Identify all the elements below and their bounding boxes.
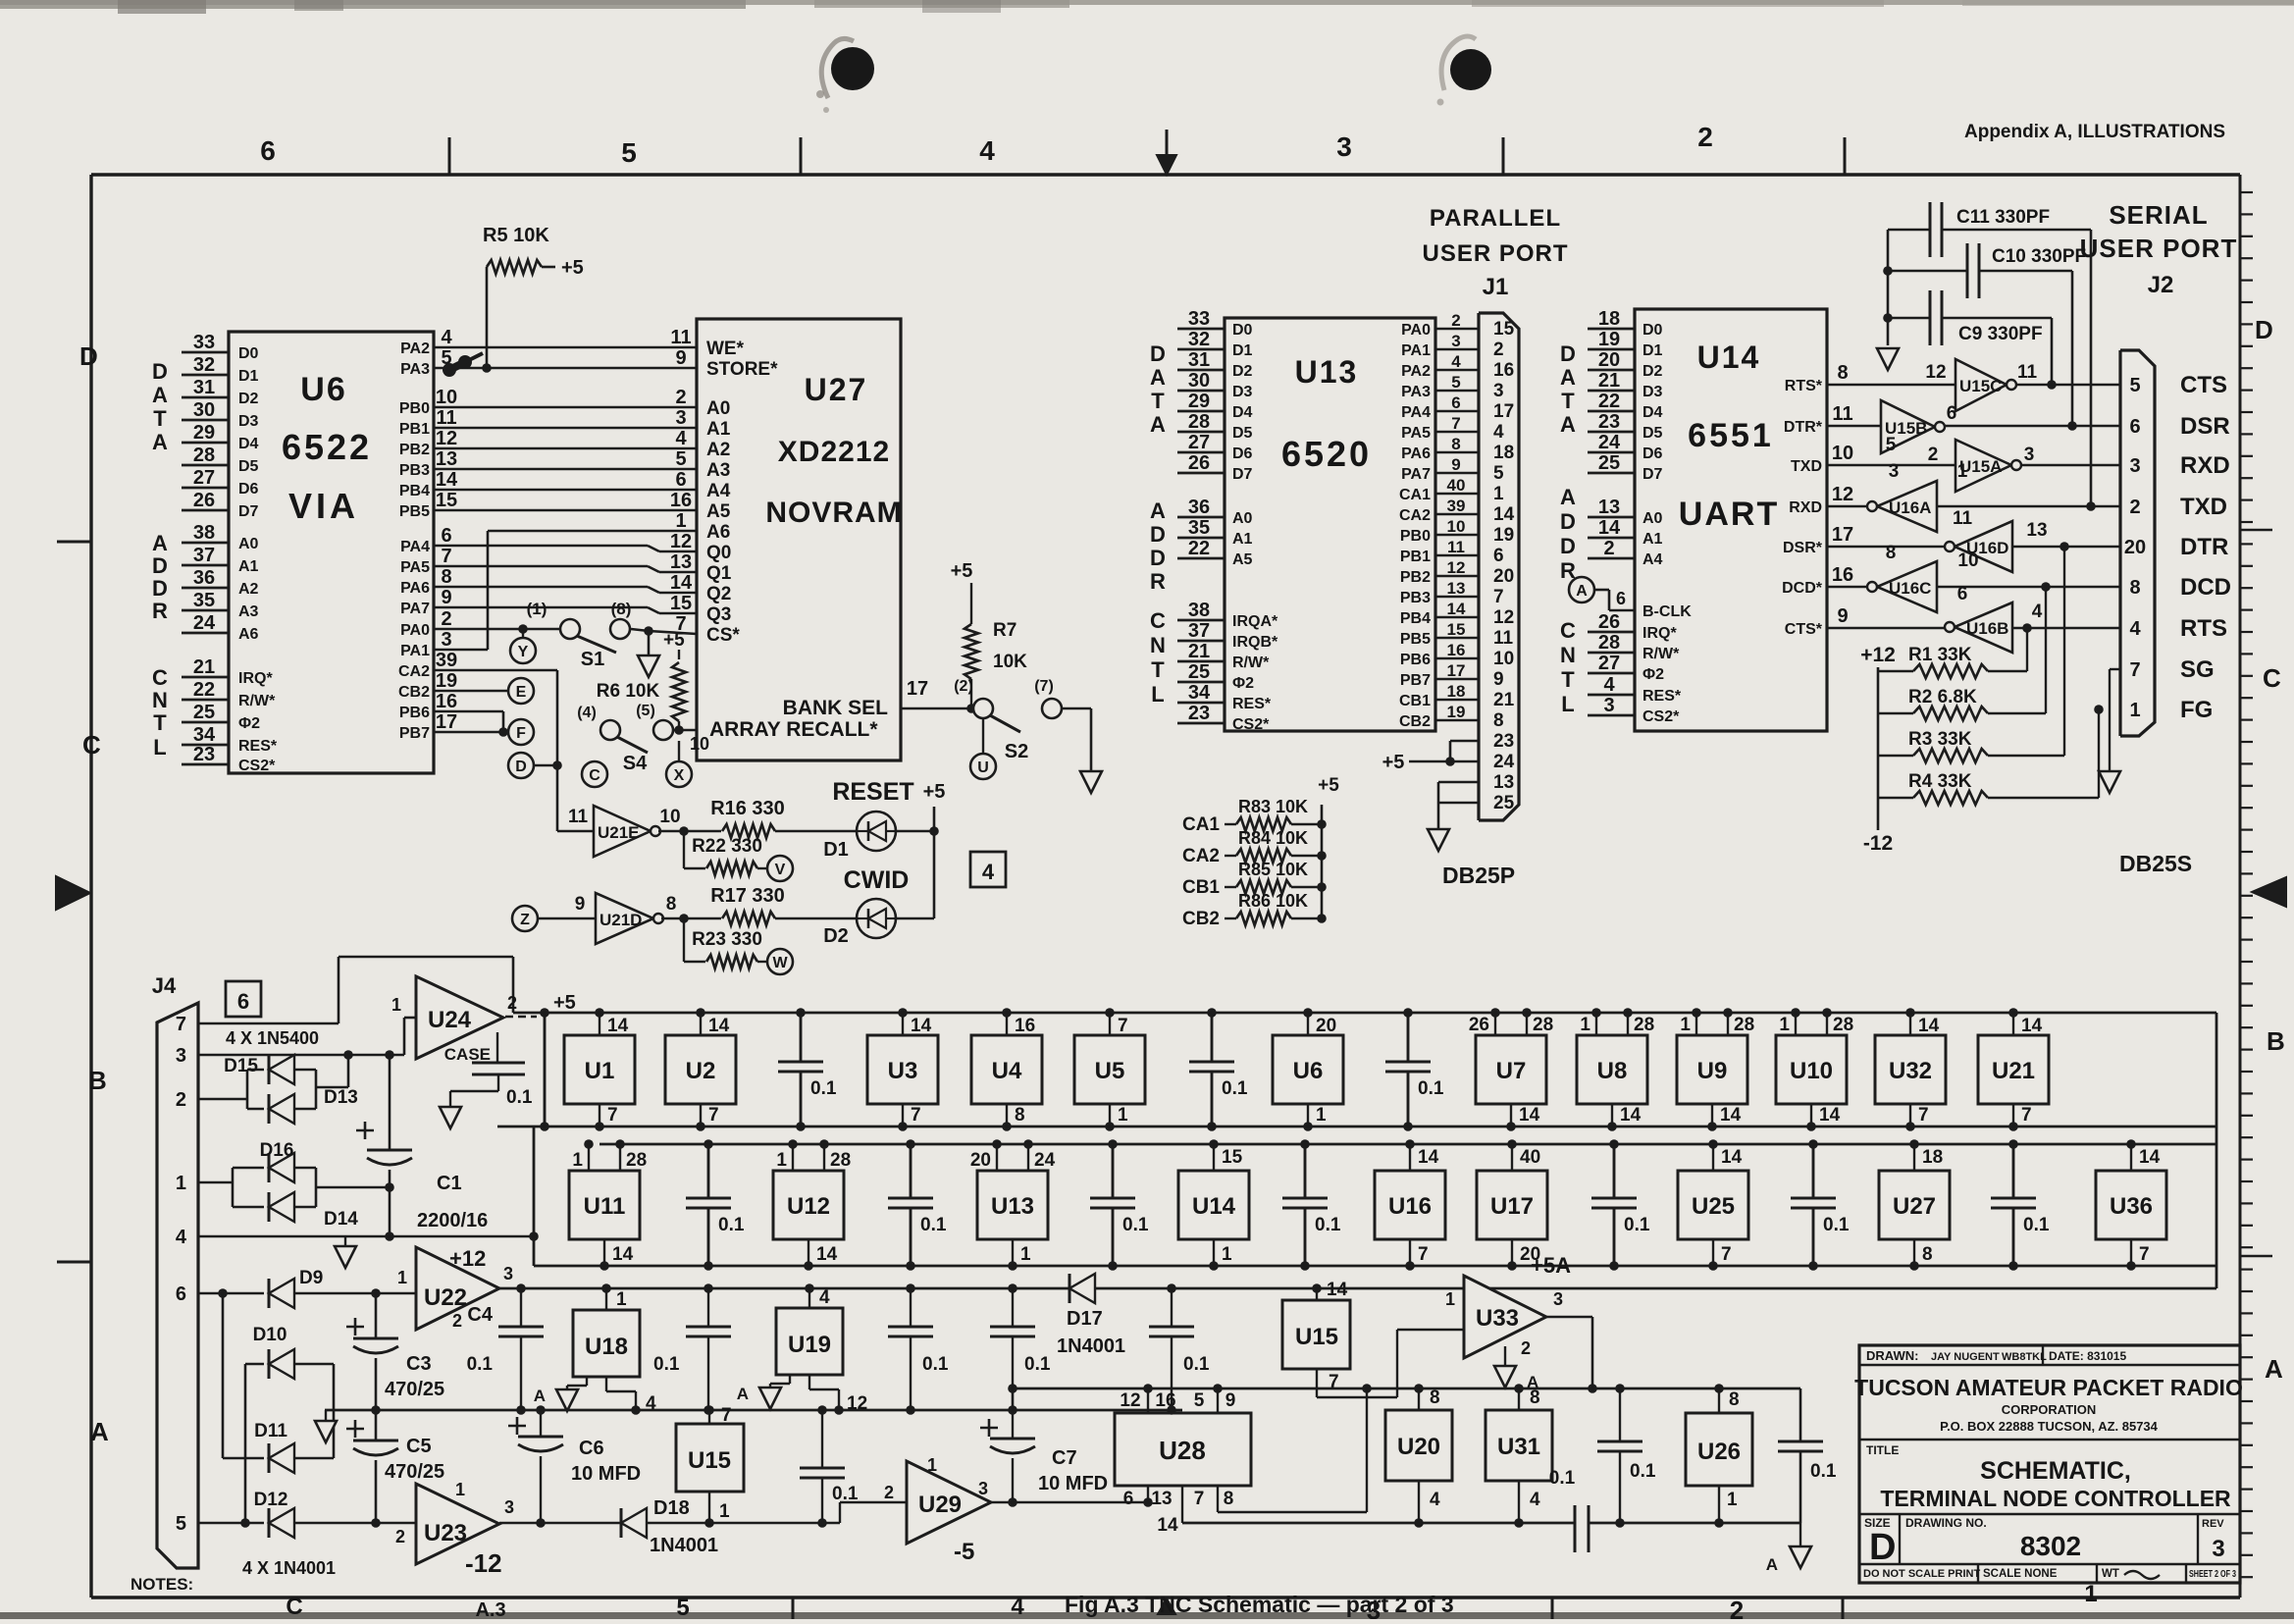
svg-text:1: 1 xyxy=(675,510,686,532)
svg-text:U14: U14 xyxy=(1192,1193,1236,1220)
svg-text:7: 7 xyxy=(1493,587,1504,607)
svg-text:PA2: PA2 xyxy=(1401,363,1431,380)
svg-text:14: 14 xyxy=(1418,1147,1439,1168)
svg-text:U29: U29 xyxy=(918,1492,962,1518)
svg-text:D12: D12 xyxy=(254,1490,288,1510)
svg-text:C9 330PF: C9 330PF xyxy=(1958,324,2043,344)
svg-text:0.1: 0.1 xyxy=(832,1484,859,1504)
svg-text:R83 10K: R83 10K xyxy=(1238,797,1308,816)
svg-text:A1: A1 xyxy=(1642,531,1663,548)
svg-text:2: 2 xyxy=(1521,1338,1531,1358)
svg-text:NOTES:: NOTES: xyxy=(130,1575,193,1594)
svg-text:A: A xyxy=(1150,412,1166,437)
svg-text:1: 1 xyxy=(1020,1244,1031,1265)
svg-text:0.1: 0.1 xyxy=(718,1215,745,1235)
svg-text:CB2: CB2 xyxy=(1182,909,1220,929)
svg-text:U26: U26 xyxy=(1697,1439,1741,1465)
svg-text:14: 14 xyxy=(708,1016,730,1036)
svg-text:28: 28 xyxy=(1533,1015,1553,1035)
svg-text:U14: U14 xyxy=(1697,340,1761,375)
svg-text:9: 9 xyxy=(1493,669,1504,690)
svg-text:4: 4 xyxy=(441,327,452,348)
svg-text:0.1: 0.1 xyxy=(1315,1215,1341,1235)
svg-text:34: 34 xyxy=(1188,682,1211,704)
svg-text:16: 16 xyxy=(670,490,692,511)
svg-text:13: 13 xyxy=(2026,520,2047,541)
svg-text:9: 9 xyxy=(575,894,586,915)
svg-text:2: 2 xyxy=(1730,1596,1744,1619)
svg-text:30: 30 xyxy=(193,399,215,421)
svg-text:R6 10K: R6 10K xyxy=(597,681,660,702)
svg-text:D13: D13 xyxy=(324,1087,358,1108)
svg-text:PB0: PB0 xyxy=(399,400,430,417)
svg-text:5: 5 xyxy=(1194,1390,1205,1411)
svg-text:RXD: RXD xyxy=(1789,499,1822,516)
svg-text:14: 14 xyxy=(2139,1147,2161,1168)
svg-text:11: 11 xyxy=(1953,508,1973,529)
svg-text:D2: D2 xyxy=(823,925,849,947)
svg-text:9: 9 xyxy=(1451,455,1460,474)
svg-text:P.O. BOX 22888 TUCSON, AZ: P.O. BOX 22888 TUCSON, AZ. 85734 xyxy=(1940,1419,2159,1434)
svg-text:R17 330: R17 330 xyxy=(710,885,785,907)
svg-text:38: 38 xyxy=(193,522,215,544)
svg-text:D: D xyxy=(1150,341,1166,366)
svg-text:1: 1 xyxy=(397,1268,407,1287)
svg-text:F: F xyxy=(516,725,526,742)
svg-text:4: 4 xyxy=(1430,1490,1440,1510)
svg-text:PA7: PA7 xyxy=(1401,466,1431,483)
svg-text:5: 5 xyxy=(1493,463,1504,484)
svg-text:2: 2 xyxy=(2129,497,2140,518)
svg-text:40: 40 xyxy=(1520,1147,1540,1168)
svg-text:PB6: PB6 xyxy=(1400,652,1431,668)
svg-text:10K: 10K xyxy=(993,652,1027,672)
svg-text:Q1: Q1 xyxy=(706,563,732,584)
svg-text:(2): (2) xyxy=(954,678,973,695)
svg-text:R/W*: R/W* xyxy=(238,693,276,709)
svg-text:U6: U6 xyxy=(1293,1058,1324,1084)
svg-text:24: 24 xyxy=(193,612,216,634)
svg-text:T: T xyxy=(153,710,167,735)
svg-text:PB2: PB2 xyxy=(1400,569,1431,586)
svg-text:R/W*: R/W* xyxy=(1642,646,1680,662)
svg-text:CS2*: CS2* xyxy=(1232,716,1270,733)
svg-text:14: 14 xyxy=(1157,1515,1178,1536)
svg-text:U18: U18 xyxy=(585,1334,628,1360)
svg-text:30: 30 xyxy=(1188,370,1210,392)
svg-text:DSR: DSR xyxy=(2180,413,2230,440)
svg-text:PA1: PA1 xyxy=(400,643,430,659)
svg-text:1: 1 xyxy=(455,1480,465,1499)
svg-text:32: 32 xyxy=(193,354,215,376)
svg-text:(4): (4) xyxy=(577,705,597,721)
svg-text:3: 3 xyxy=(503,1264,513,1283)
svg-text:14: 14 xyxy=(1598,517,1621,539)
svg-text:2: 2 xyxy=(395,1527,405,1546)
svg-text:RTS*: RTS* xyxy=(1785,378,1823,394)
svg-text:6: 6 xyxy=(2129,416,2140,438)
svg-text:U1: U1 xyxy=(585,1058,615,1084)
svg-text:13: 13 xyxy=(1447,579,1466,598)
svg-text:14: 14 xyxy=(1720,1105,1742,1126)
svg-text:PB2: PB2 xyxy=(399,442,430,458)
svg-text:0.1: 0.1 xyxy=(922,1354,949,1375)
svg-text:1: 1 xyxy=(1118,1105,1128,1126)
svg-text:3: 3 xyxy=(1336,131,1352,162)
svg-text:(7): (7) xyxy=(1034,678,1054,695)
svg-text:PB1: PB1 xyxy=(399,421,430,438)
svg-text:4: 4 xyxy=(1530,1490,1540,1510)
svg-text:U15: U15 xyxy=(1295,1324,1338,1350)
svg-text:6: 6 xyxy=(1947,403,1957,424)
svg-text:28: 28 xyxy=(830,1150,851,1171)
svg-text:13: 13 xyxy=(1151,1489,1172,1509)
svg-text:D: D xyxy=(1869,1527,1896,1568)
svg-text:4 X 1N5400: 4 X 1N5400 xyxy=(226,1028,319,1048)
svg-text:9: 9 xyxy=(441,587,451,608)
svg-text:13: 13 xyxy=(670,551,692,573)
svg-text:33: 33 xyxy=(1188,308,1210,330)
svg-text:D1: D1 xyxy=(238,368,259,385)
svg-text:U21: U21 xyxy=(1992,1058,2035,1084)
svg-text:0.1: 0.1 xyxy=(1810,1461,1837,1482)
svg-text:CWID: CWID xyxy=(844,866,910,894)
svg-text:6520: 6520 xyxy=(1281,434,1372,474)
svg-text:11: 11 xyxy=(436,407,456,429)
svg-text:SCALE NONE: SCALE NONE xyxy=(1983,1568,2058,1580)
svg-text:U8: U8 xyxy=(1597,1058,1628,1084)
svg-text:2: 2 xyxy=(884,1483,894,1502)
svg-text:J4: J4 xyxy=(152,973,177,998)
svg-text:10: 10 xyxy=(659,807,680,827)
svg-text:11: 11 xyxy=(1447,538,1465,556)
svg-text:CB1: CB1 xyxy=(1182,877,1220,898)
svg-text:10: 10 xyxy=(1957,550,1978,571)
svg-text:28: 28 xyxy=(193,445,215,466)
svg-text:19: 19 xyxy=(1447,703,1466,721)
svg-text:A: A xyxy=(152,430,168,454)
svg-text:DATE: 831015: DATE: 831015 xyxy=(2049,1349,2126,1363)
svg-text:1: 1 xyxy=(1580,1015,1590,1035)
svg-text:U2: U2 xyxy=(686,1058,716,1084)
svg-text:26: 26 xyxy=(1469,1015,1489,1035)
svg-text:0.1: 0.1 xyxy=(653,1354,680,1375)
svg-text:D14: D14 xyxy=(324,1209,358,1230)
svg-text:A: A xyxy=(737,1385,749,1403)
svg-text:3: 3 xyxy=(1603,695,1614,716)
svg-text:6: 6 xyxy=(1123,1489,1134,1509)
svg-text:PA7: PA7 xyxy=(400,601,430,617)
svg-text:A6: A6 xyxy=(238,626,259,643)
svg-text:5: 5 xyxy=(621,137,637,168)
svg-text:U28: U28 xyxy=(1159,1436,1206,1465)
svg-text:V: V xyxy=(775,862,786,878)
svg-text:+5: +5 xyxy=(663,630,685,651)
svg-text:1: 1 xyxy=(776,1150,787,1171)
svg-text:RTS: RTS xyxy=(2180,615,2227,642)
svg-text:PB3: PB3 xyxy=(399,462,430,479)
svg-text:D6: D6 xyxy=(1642,445,1663,462)
svg-text:4: 4 xyxy=(646,1393,656,1414)
svg-text:U19: U19 xyxy=(788,1332,831,1358)
svg-text:+5: +5 xyxy=(923,781,946,803)
svg-text:12: 12 xyxy=(1120,1390,1140,1411)
svg-text:U21D: U21D xyxy=(600,911,642,929)
svg-text:10: 10 xyxy=(690,734,709,754)
svg-text:19: 19 xyxy=(436,670,457,692)
svg-text:SCHEMATIC,: SCHEMATIC, xyxy=(1980,1457,2131,1485)
svg-text:PA4: PA4 xyxy=(400,539,430,555)
svg-text:6: 6 xyxy=(1616,589,1626,608)
svg-text:3: 3 xyxy=(1367,1596,1381,1619)
svg-text:23: 23 xyxy=(1188,703,1210,724)
svg-text:U5: U5 xyxy=(1095,1058,1125,1084)
svg-text:A5: A5 xyxy=(1232,551,1253,568)
svg-text:1: 1 xyxy=(1493,484,1504,504)
svg-text:8: 8 xyxy=(1493,710,1504,731)
svg-text:D: D xyxy=(152,576,168,601)
svg-text:5: 5 xyxy=(2129,375,2140,396)
svg-text:-5: -5 xyxy=(954,1539,974,1565)
svg-text:29: 29 xyxy=(1188,391,1210,412)
svg-text:2: 2 xyxy=(441,608,451,630)
svg-text:C: C xyxy=(286,1594,302,1619)
svg-text:FG: FG xyxy=(2180,697,2213,723)
svg-text:R84 10K: R84 10K xyxy=(1238,828,1308,848)
svg-text:7: 7 xyxy=(441,546,451,567)
svg-text:IRQ*: IRQ* xyxy=(1642,625,1677,642)
svg-text:29: 29 xyxy=(193,422,215,444)
svg-text:1N4001: 1N4001 xyxy=(1057,1336,1125,1357)
svg-text:0.1: 0.1 xyxy=(1418,1078,1444,1099)
svg-text:31: 31 xyxy=(193,377,215,398)
svg-text:U20: U20 xyxy=(1397,1434,1440,1460)
svg-text:U12: U12 xyxy=(787,1193,830,1220)
svg-text:6551: 6551 xyxy=(1688,417,1774,454)
svg-text:4: 4 xyxy=(982,860,995,884)
svg-text:U21E: U21E xyxy=(598,823,640,842)
svg-text:3: 3 xyxy=(1451,332,1460,350)
svg-text:IRQ*: IRQ* xyxy=(238,670,273,687)
svg-text:CB1: CB1 xyxy=(1399,693,1431,709)
svg-text:D2: D2 xyxy=(1232,363,1253,380)
svg-text:A: A xyxy=(1560,365,1576,390)
svg-text:PA5: PA5 xyxy=(1401,425,1431,442)
svg-text:PB5: PB5 xyxy=(399,503,430,520)
svg-text:4: 4 xyxy=(1451,352,1461,371)
svg-text:10 MFD: 10 MFD xyxy=(1038,1473,1108,1494)
svg-text:14: 14 xyxy=(436,469,458,491)
svg-text:3: 3 xyxy=(1493,381,1504,401)
svg-text:D3: D3 xyxy=(1232,384,1253,400)
svg-text:12: 12 xyxy=(436,428,457,449)
svg-text:IRQA*: IRQA* xyxy=(1232,613,1278,630)
svg-text:20: 20 xyxy=(970,1150,991,1171)
svg-text:26: 26 xyxy=(1188,452,1210,474)
svg-text:U6: U6 xyxy=(300,371,346,408)
svg-text:R1 33K: R1 33K xyxy=(1908,645,1972,665)
svg-text:19: 19 xyxy=(1598,329,1620,350)
svg-text:R2 6.8K: R2 6.8K xyxy=(1908,687,1977,707)
svg-text:A: A xyxy=(534,1387,546,1405)
svg-text:8: 8 xyxy=(1886,543,1897,563)
svg-text:PA3: PA3 xyxy=(1401,384,1431,400)
svg-text:D1: D1 xyxy=(1232,342,1253,359)
svg-text:1: 1 xyxy=(1316,1105,1327,1126)
svg-text:8: 8 xyxy=(1430,1388,1440,1408)
svg-text:A4: A4 xyxy=(1642,551,1663,568)
svg-text:3: 3 xyxy=(176,1045,186,1067)
svg-text:0.1: 0.1 xyxy=(1122,1215,1149,1235)
svg-text:WE*: WE* xyxy=(706,339,745,359)
svg-text:Y: Y xyxy=(518,644,529,660)
svg-text:U16C: U16C xyxy=(1889,579,1931,598)
svg-text:S1: S1 xyxy=(581,649,604,670)
svg-text:C11 330PF: C11 330PF xyxy=(1956,207,2050,228)
svg-text:21: 21 xyxy=(1598,370,1620,392)
svg-text:28: 28 xyxy=(626,1150,647,1171)
svg-text:8: 8 xyxy=(1224,1489,1234,1509)
svg-text:DSR*: DSR* xyxy=(1783,540,1823,556)
svg-text:D: D xyxy=(1150,522,1166,547)
svg-text:U15C: U15C xyxy=(1959,377,2002,395)
svg-text:11: 11 xyxy=(670,327,691,348)
svg-text:16: 16 xyxy=(1015,1016,1035,1036)
svg-text:15: 15 xyxy=(670,593,692,614)
svg-text:23: 23 xyxy=(1493,731,1514,752)
svg-text:D0: D0 xyxy=(1642,322,1663,339)
svg-text:3: 3 xyxy=(1889,461,1900,482)
svg-text:PB5: PB5 xyxy=(1400,631,1431,648)
svg-text:14: 14 xyxy=(1819,1105,1841,1126)
svg-text:14: 14 xyxy=(1620,1105,1642,1126)
svg-text:2: 2 xyxy=(1697,122,1713,152)
svg-text:1: 1 xyxy=(1779,1015,1790,1035)
svg-text:R: R xyxy=(152,599,168,623)
svg-text:7: 7 xyxy=(2021,1105,2032,1126)
svg-text:NOVRAM: NOVRAM xyxy=(765,497,902,529)
svg-text:Q3: Q3 xyxy=(706,604,731,625)
svg-text:TXD: TXD xyxy=(1791,458,1822,475)
svg-text:1: 1 xyxy=(1680,1015,1691,1035)
svg-text:(1): (1) xyxy=(527,600,547,618)
svg-text:+12: +12 xyxy=(449,1246,486,1271)
svg-text:D7: D7 xyxy=(1232,466,1253,483)
svg-text:6: 6 xyxy=(1957,584,1968,604)
svg-text:D4: D4 xyxy=(238,436,259,452)
svg-text:SG: SG xyxy=(2180,656,2215,683)
svg-text:W: W xyxy=(772,955,788,971)
svg-text:14: 14 xyxy=(1918,1016,1940,1036)
svg-text:0.1: 0.1 xyxy=(506,1087,533,1108)
svg-text:4: 4 xyxy=(1011,1594,1024,1619)
svg-text:RES*: RES* xyxy=(1642,688,1682,705)
svg-text:CORPORATION: CORPORATION xyxy=(2002,1402,2097,1417)
svg-text:470/25: 470/25 xyxy=(385,1461,444,1483)
svg-text:14: 14 xyxy=(1327,1280,1348,1300)
svg-text:R3 33K: R3 33K xyxy=(1908,729,1972,750)
svg-text:1: 1 xyxy=(1445,1289,1455,1309)
svg-text:4: 4 xyxy=(675,428,687,449)
svg-text:8: 8 xyxy=(666,894,677,915)
svg-text:R/W*: R/W* xyxy=(1232,655,1270,671)
svg-text:14: 14 xyxy=(670,572,693,594)
svg-text:2: 2 xyxy=(1603,538,1614,559)
svg-text:1: 1 xyxy=(1222,1244,1232,1265)
svg-text:CS*: CS* xyxy=(706,625,740,646)
svg-text:U4: U4 xyxy=(992,1058,1022,1084)
svg-text:D5: D5 xyxy=(1642,425,1663,442)
svg-text:DB25S: DB25S xyxy=(2119,851,2192,876)
svg-text:35: 35 xyxy=(1188,517,1210,539)
svg-text:D6: D6 xyxy=(1232,445,1253,462)
svg-text:23: 23 xyxy=(1598,411,1620,433)
svg-text:D1: D1 xyxy=(823,839,849,861)
svg-text:14: 14 xyxy=(1447,600,1466,618)
svg-text:7: 7 xyxy=(1918,1105,1929,1126)
svg-text:A1: A1 xyxy=(1232,531,1253,548)
svg-text:8: 8 xyxy=(1451,435,1460,453)
svg-text:D15: D15 xyxy=(224,1056,258,1076)
svg-text:U: U xyxy=(977,760,989,776)
svg-text:18: 18 xyxy=(1598,308,1620,330)
svg-text:L: L xyxy=(1561,692,1574,716)
svg-text:17: 17 xyxy=(907,678,928,700)
svg-text:4: 4 xyxy=(2129,618,2141,640)
svg-text:PB4: PB4 xyxy=(1400,610,1431,627)
svg-text:TXD: TXD xyxy=(2180,494,2227,520)
svg-text:10: 10 xyxy=(1447,517,1466,536)
svg-text:2: 2 xyxy=(176,1089,186,1111)
svg-text:34: 34 xyxy=(193,724,216,746)
svg-text:A5: A5 xyxy=(706,501,731,522)
svg-text:R22 330: R22 330 xyxy=(692,836,762,857)
svg-text:27: 27 xyxy=(1598,653,1620,674)
svg-text:0.1: 0.1 xyxy=(810,1078,837,1099)
svg-text:25: 25 xyxy=(1598,452,1620,474)
svg-text:C: C xyxy=(589,767,600,784)
svg-text:U15: U15 xyxy=(688,1447,731,1474)
svg-text:7: 7 xyxy=(1451,414,1460,433)
svg-text:12: 12 xyxy=(1447,558,1466,577)
svg-text:Φ2: Φ2 xyxy=(238,715,260,732)
svg-text:R4 33K: R4 33K xyxy=(1908,771,1972,792)
svg-text:PA2: PA2 xyxy=(400,341,430,357)
svg-text:15: 15 xyxy=(1447,620,1466,639)
svg-text:(5): (5) xyxy=(636,703,655,719)
svg-text:12: 12 xyxy=(1493,607,1514,628)
svg-text:U10: U10 xyxy=(1790,1058,1833,1084)
svg-text:3: 3 xyxy=(2212,1536,2224,1562)
svg-text:2: 2 xyxy=(452,1311,462,1331)
svg-text:20: 20 xyxy=(1316,1016,1336,1036)
svg-text:6: 6 xyxy=(441,525,451,547)
svg-text:R: R xyxy=(1150,569,1166,594)
svg-text:R23 330: R23 330 xyxy=(692,929,762,950)
svg-text:D16: D16 xyxy=(260,1140,294,1161)
svg-text:N: N xyxy=(1560,643,1576,667)
svg-text:A4: A4 xyxy=(706,481,731,501)
svg-text:6: 6 xyxy=(1451,393,1460,412)
svg-text:U33: U33 xyxy=(1476,1305,1519,1332)
svg-text:0.1: 0.1 xyxy=(1549,1468,1576,1489)
svg-text:USER PORT: USER PORT xyxy=(1422,240,1568,267)
svg-text:7: 7 xyxy=(176,1014,186,1035)
svg-text:D: D xyxy=(1560,534,1576,558)
svg-text:38: 38 xyxy=(1188,600,1210,621)
svg-text:0.1: 0.1 xyxy=(2023,1215,2050,1235)
svg-text:DTR: DTR xyxy=(2180,534,2228,560)
